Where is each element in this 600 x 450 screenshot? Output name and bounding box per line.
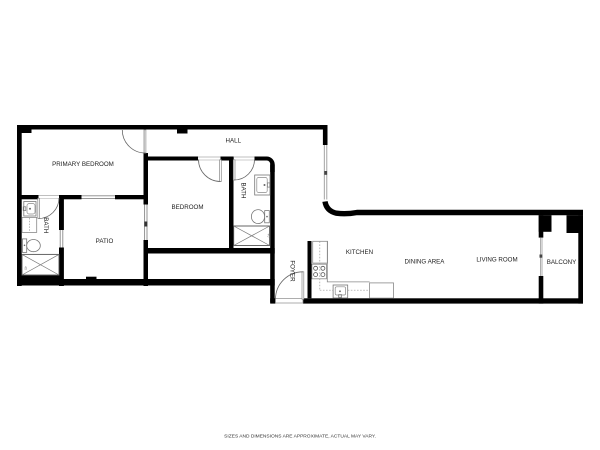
- svg-text:SIZES AND DIMENSIONS ARE APPRO: SIZES AND DIMENSIONS ARE APPROXIMATE, AC…: [224, 433, 376, 439]
- svg-text:PRIMARY BEDROOM: PRIMARY BEDROOM: [52, 161, 114, 168]
- svg-text:BEDROOM: BEDROOM: [172, 204, 204, 211]
- svg-text:40: 40: [266, 234, 270, 238]
- svg-text:DINING AREA: DINING AREA: [405, 258, 446, 265]
- svg-text:PATIO: PATIO: [96, 238, 114, 245]
- svg-text:LIVING ROOM: LIVING ROOM: [476, 257, 517, 264]
- svg-text:HALL: HALL: [226, 138, 242, 145]
- svg-text:40: 40: [24, 266, 28, 270]
- svg-text:FOYER: FOYER: [289, 260, 296, 282]
- svg-text:BALCONY: BALCONY: [547, 259, 577, 266]
- svg-text:KITCHEN: KITCHEN: [346, 249, 373, 256]
- svg-text:BATH: BATH: [240, 182, 247, 198]
- svg-text:BATH: BATH: [42, 217, 49, 233]
